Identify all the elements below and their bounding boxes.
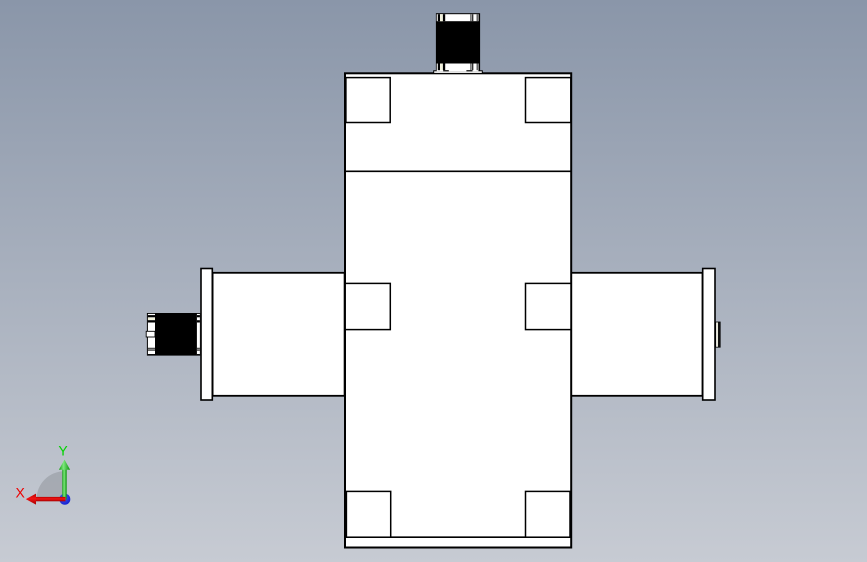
svg-text:X: X xyxy=(16,485,26,501)
svg-text:Y: Y xyxy=(58,443,68,459)
